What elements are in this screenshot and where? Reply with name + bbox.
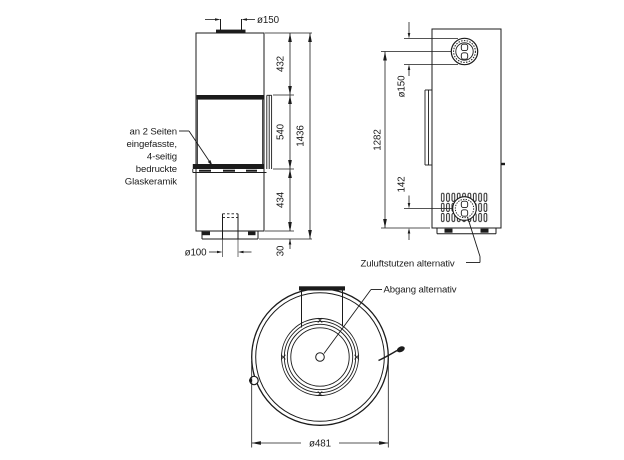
glass-note-line4: bedruckte xyxy=(136,164,177,175)
top-outlet-label: Abgang alternativ xyxy=(384,285,457,296)
side-plinth xyxy=(437,228,496,234)
front-total-height-label: 1436 xyxy=(296,125,307,147)
side-glass-edge xyxy=(425,90,432,165)
side-flue-dia-label: ø150 xyxy=(397,75,408,98)
side-air-inlet-circle xyxy=(453,197,477,221)
side-latch xyxy=(501,163,505,165)
front-flue-dim xyxy=(205,18,255,21)
glass-note-line5: Glaskeramik xyxy=(125,177,178,188)
side-air-center-height-label: 142 xyxy=(397,176,408,192)
top-body-dia-label: ø481 xyxy=(309,439,331,450)
front-plinth xyxy=(202,231,258,239)
stove-dimension-drawing: ø150 432 540 1436 434 30 ø100 an 2 Seite… xyxy=(0,0,624,460)
top-body-outer xyxy=(252,289,389,426)
front-air-dia-label: ø100 xyxy=(185,248,208,259)
side-view xyxy=(425,29,505,234)
front-plinth-height-label: 30 xyxy=(276,245,287,256)
glass-note-line1: an 2 Seiten xyxy=(130,127,177,138)
technical-drawing-page: ø150 432 540 1436 434 30 ø100 an 2 Seite… xyxy=(0,0,624,460)
top-left-knob xyxy=(249,376,258,384)
side-air-inlet-label: Zuluftstutzen alternativ xyxy=(361,259,455,270)
top-view xyxy=(249,286,406,425)
front-top-height-label: 432 xyxy=(276,56,287,72)
glass-note-line3: 4-seitig xyxy=(147,152,177,163)
side-flue-center-height-label: 1282 xyxy=(373,129,384,150)
front-view xyxy=(193,19,272,257)
front-glass-height-label: 540 xyxy=(276,123,287,140)
glass-note-line2: eingefasste, xyxy=(126,139,177,150)
front-air-dim xyxy=(209,251,252,254)
front-flue-pipe xyxy=(216,19,246,33)
front-base-height-label: 434 xyxy=(276,191,287,208)
front-flue-dia-label: ø150 xyxy=(257,15,280,26)
glass-note: an 2 Seiten eingefasste, 4-seitig bedruc… xyxy=(125,127,178,188)
front-body xyxy=(196,33,264,231)
front-side-glass-edge xyxy=(267,95,272,169)
